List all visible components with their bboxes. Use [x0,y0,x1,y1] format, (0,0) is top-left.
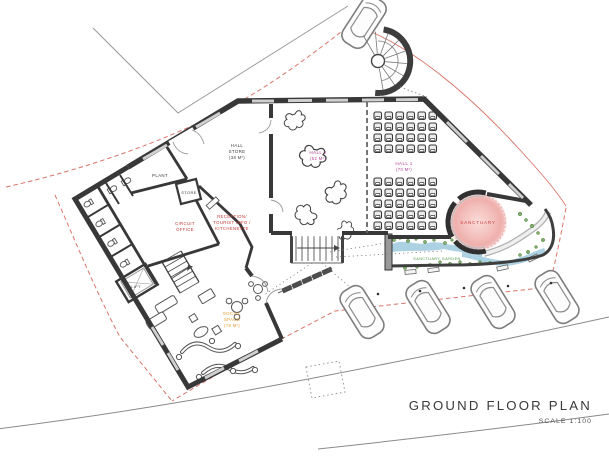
social-furniture [145,282,267,380]
store-label: STORE [181,190,196,195]
chair [396,211,404,219]
drawing-title: GROUND FLOOR PLAN [409,398,592,413]
chair [385,200,393,208]
side-table [189,314,198,323]
chair [418,145,426,153]
chair [429,200,437,208]
reception-label: TOURIST INFO / [213,220,251,225]
social-space-label: SPACE [224,317,240,322]
drawing-scale: SCALE 1:100 [539,418,592,425]
chair [385,222,393,230]
chair [429,222,437,230]
chair [429,211,437,219]
boundary-left [55,195,172,401]
chair [396,189,404,197]
road-edge-top [93,6,348,113]
chair [385,145,393,153]
reception-label: RECEPTION/ [217,214,247,219]
chair [407,189,415,197]
chair [385,134,393,142]
chair [418,222,426,230]
hall2-area: (52 M²) [310,156,326,161]
chair [407,134,415,142]
car [403,277,454,337]
hall-store-area: (38 M²) [229,155,245,160]
chair [385,123,393,131]
chair [374,211,382,219]
chair [374,200,382,208]
chair [407,178,415,186]
chair [407,145,415,153]
floor-plan-sheet: HALL STORE (38 M²) HALL 2 (52 M²) HALL 1… [0,0,609,457]
chair [429,178,437,186]
hall-store-label: STORE [229,149,246,154]
hall1-label: HALL 1 [395,161,412,166]
chair [374,145,382,153]
plant-label: PLANT [152,173,168,178]
chair [429,145,437,153]
chair [385,112,393,120]
chair [396,200,404,208]
crossing-dotted-rect [306,361,345,398]
car [468,272,519,332]
sanctuary-label: SANCTUARY [460,220,495,225]
ground-floor-plan-drawing: HALL STORE (38 M²) HALL 2 (52 M²) HALL 1… [0,0,609,457]
spiral-stair-column [372,55,385,68]
chair [374,222,382,230]
chair [429,123,437,131]
chair [396,123,404,131]
chair [429,189,437,197]
chair [374,178,382,186]
chair [396,178,404,186]
piano [198,288,215,303]
oval-table [192,324,209,339]
parking-bollards [377,282,553,296]
chair [407,222,415,230]
chair [418,200,426,208]
chair [418,189,426,197]
reception-label: KITCHENETTE [215,226,249,231]
chair [418,134,426,142]
chair [429,134,437,142]
circuit-office-label: OFFICE [176,227,194,232]
side-table [212,325,222,335]
social-space-label: SOCIAL [223,311,241,316]
hall2-label: HALL 2 [309,150,326,155]
chair [396,134,404,142]
chair [374,189,382,197]
chair [374,134,382,142]
chair [418,123,426,131]
chair [385,178,393,186]
hall1-area: (70 M²) [396,167,412,172]
sanctuary-garden-label: SANCTUARY GARDEN [413,257,460,261]
car [337,282,388,342]
chair [374,112,382,120]
hall-store-label: HALL [231,143,244,148]
chair [374,123,382,131]
hall-entry-steps [291,233,343,263]
round-table [254,285,263,294]
ramp-gate [278,267,333,294]
chair [418,112,426,120]
circuit-office-label: CIRCUIT [175,221,195,226]
chair [407,123,415,131]
chair [385,189,393,197]
sofa [155,295,178,314]
lift-label: LIFT [131,284,141,289]
social-space-area: (78 M²) [224,323,240,328]
garden-planter-bar [385,234,392,270]
chair [385,211,393,219]
chair [407,211,415,219]
chair [396,145,404,153]
title-block: GROUND FLOOR PLAN SCALE 1:100 [409,398,592,425]
chair [396,222,404,230]
lift [116,264,158,302]
chair [418,211,426,219]
car [532,267,583,327]
hall2-dancer-figures [284,111,358,243]
chair [418,178,426,186]
chair [407,112,415,120]
chair [396,112,404,120]
chair [407,200,415,208]
